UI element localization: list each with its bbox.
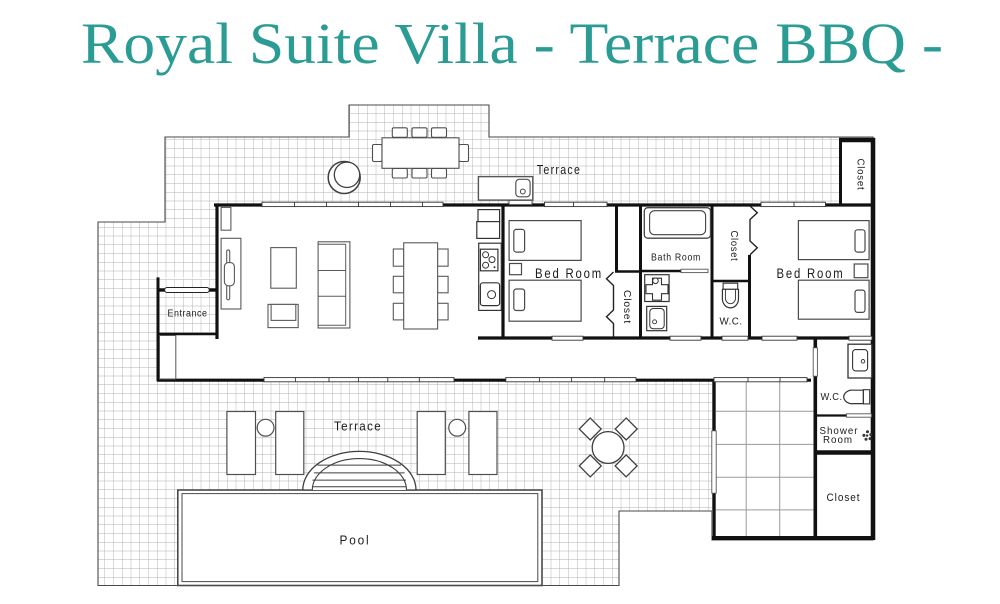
svg-text:W.C.: W.C.	[821, 391, 843, 403]
svg-text:Entrance: Entrance	[168, 309, 208, 320]
svg-text:Bath Room: Bath Room	[651, 252, 701, 264]
svg-text:Closet: Closet	[621, 290, 633, 324]
svg-text:W.C.: W.C.	[720, 316, 743, 328]
svg-text:Bed Room: Bed Room	[535, 266, 603, 281]
svg-text:Room: Room	[823, 435, 853, 446]
svg-text:Closet: Closet	[827, 492, 861, 504]
svg-text:Terrace: Terrace	[334, 419, 382, 434]
svg-text:Bed Room: Bed Room	[777, 266, 845, 281]
svg-text:Closet: Closet	[855, 159, 867, 191]
svg-text:Royal Suite Villa - Terrace BB: Royal Suite Villa - Terrace BBQ -	[81, 11, 943, 76]
svg-text:Closet: Closet	[728, 231, 740, 262]
svg-text:Pool: Pool	[340, 533, 371, 548]
svg-text:Terrace: Terrace	[537, 163, 582, 177]
